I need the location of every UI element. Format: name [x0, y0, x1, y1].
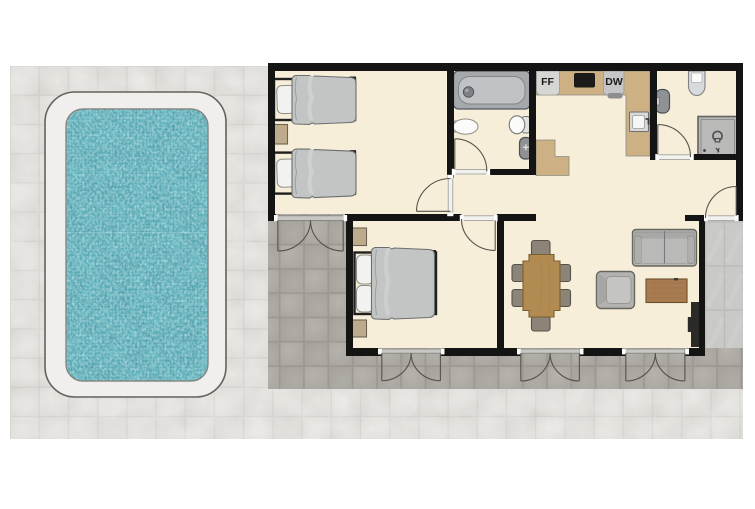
svg-text:FF: FF	[541, 76, 554, 88]
svg-text:DW: DW	[605, 76, 623, 88]
